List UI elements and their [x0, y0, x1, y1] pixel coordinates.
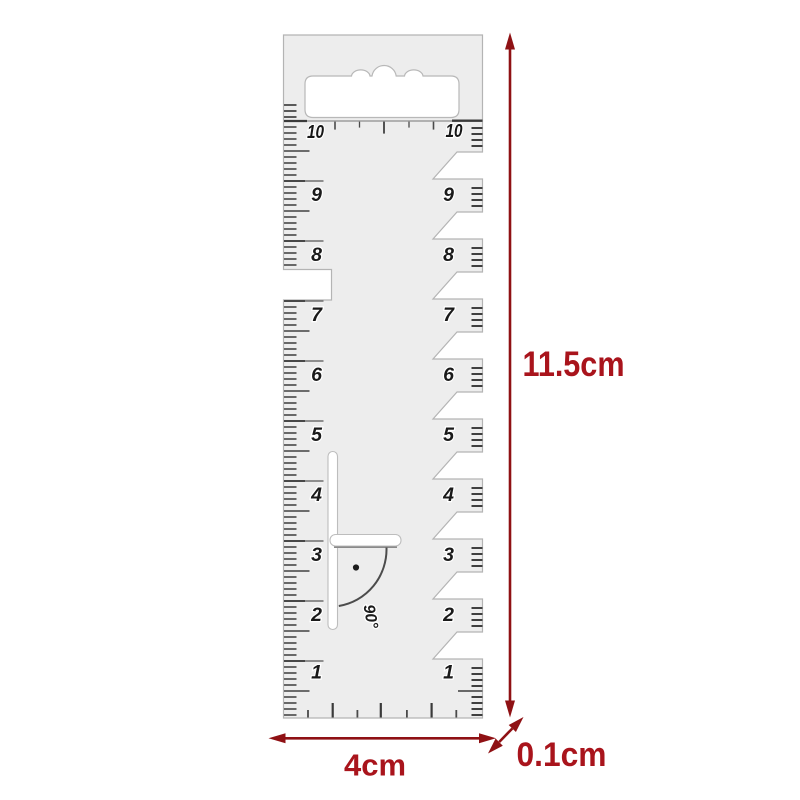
svg-text:9: 9 [311, 184, 322, 206]
svg-text:10: 10 [307, 121, 325, 142]
svg-text:6: 6 [443, 364, 454, 386]
svg-text:7: 7 [443, 304, 455, 326]
svg-text:4cm: 4cm [344, 748, 406, 783]
svg-text:1: 1 [311, 662, 322, 684]
svg-text:11.5cm: 11.5cm [523, 345, 625, 384]
svg-text:9: 9 [443, 184, 454, 206]
svg-text:5: 5 [311, 424, 323, 446]
svg-text:4: 4 [310, 484, 322, 506]
svg-text:4: 4 [442, 484, 454, 506]
svg-text:0.1cm: 0.1cm [517, 736, 607, 774]
svg-text:2: 2 [310, 604, 322, 626]
svg-text:2: 2 [442, 604, 454, 626]
svg-text:5: 5 [443, 424, 455, 446]
svg-text:3: 3 [311, 544, 322, 566]
svg-text:6: 6 [311, 364, 322, 386]
svg-text:8: 8 [443, 244, 454, 266]
svg-text:1: 1 [443, 662, 454, 684]
svg-text:7: 7 [311, 304, 323, 326]
svg-text:10: 10 [446, 120, 464, 141]
svg-text:8: 8 [311, 244, 322, 266]
svg-text:3: 3 [443, 544, 454, 566]
